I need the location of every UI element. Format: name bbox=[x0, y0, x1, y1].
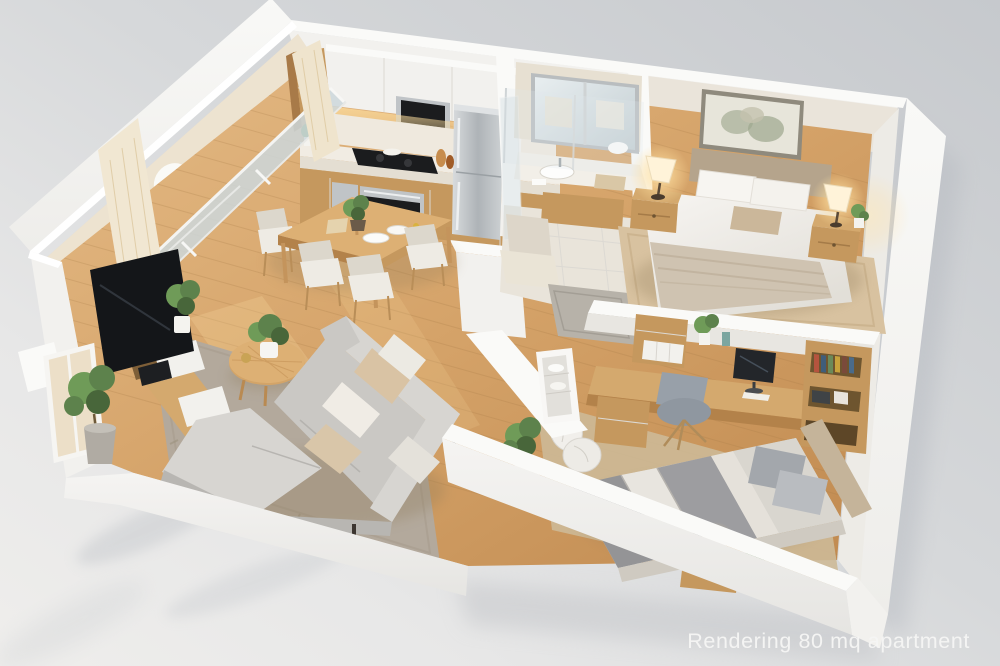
apartment-rendering: Rendering 80 mq apartment bbox=[0, 0, 1000, 666]
door-mat bbox=[500, 250, 560, 289]
caption-text: Rendering 80 mq apartment bbox=[687, 629, 970, 653]
render-canvas: Rendering 80 mq apartment bbox=[0, 0, 1000, 666]
wall-art bbox=[699, 89, 804, 160]
refrigerator bbox=[452, 104, 504, 240]
towel-roll bbox=[548, 364, 564, 372]
towel bbox=[532, 179, 546, 185]
desk-hutch bbox=[632, 314, 688, 368]
tray bbox=[594, 174, 626, 191]
gold-bowl bbox=[241, 353, 251, 363]
table-lamp-left bbox=[630, 144, 690, 204]
desk-drawers bbox=[594, 396, 650, 448]
napkin bbox=[326, 218, 348, 234]
desk-jar bbox=[722, 332, 730, 346]
